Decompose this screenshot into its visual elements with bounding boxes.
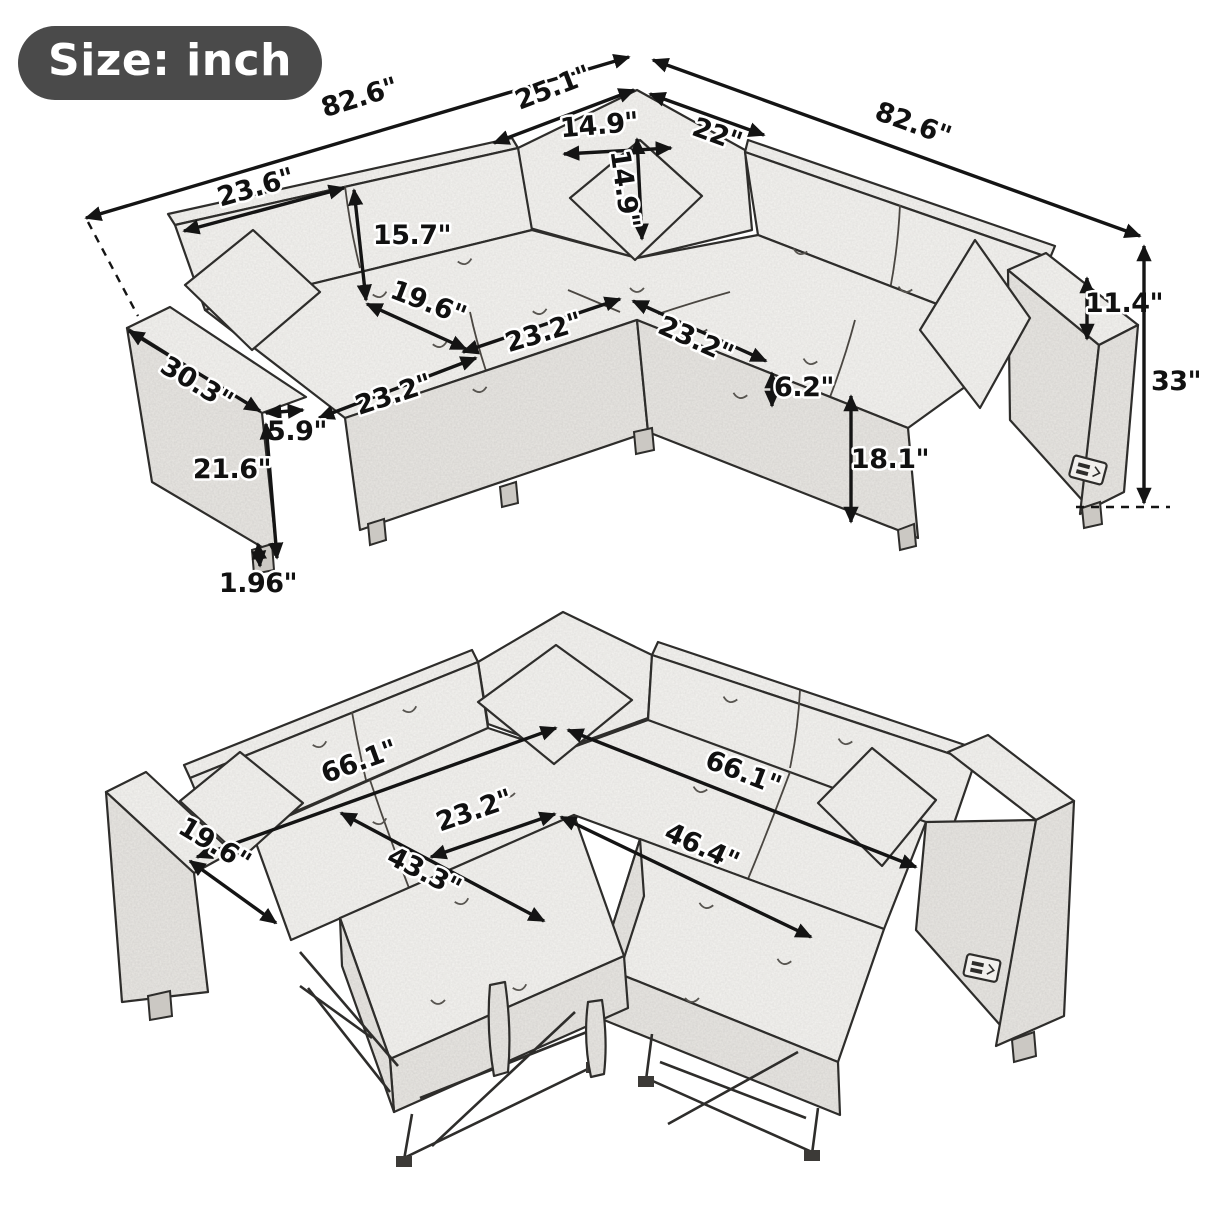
bed-left-armrest-leg [148,991,172,1020]
dim-label-leg-height: 1.96" [219,568,297,599]
dim-leg-height: 1.96" [219,544,297,599]
dim-cushion-thickness: 6.2" [772,372,834,406]
dim-label-arm-width: 5.9" [267,416,327,447]
diagram-canvas: 82.6" 25.1" 22" 82.6" 23.6" 14.9" [0,0,1214,1214]
dim-label-back-cushion-height: 15.7" [373,220,451,251]
dim-label-seat-height: 18.1" [851,444,929,475]
bed-view: 66.1" 66.1" 23.2" 46.4" 19.6" 43.3" [106,612,1074,1167]
sofa-leg [634,428,654,454]
dim-label-total-width-left: 82.6" [318,72,402,125]
dim-label-arm-height: 21.6" [193,454,271,485]
sofa-leg [500,482,518,507]
bed-sofa-sketch [106,612,1074,1167]
dim-arm-width: 5.9" [266,410,327,447]
dim-label-back-above-arm: 11.4" [1085,288,1163,319]
dim-label-cushion-thickness: 6.2" [774,372,834,403]
size-unit-badge-label: Size: inch [48,35,292,86]
size-unit-badge: Size: inch [18,26,322,100]
assembled-view: 82.6" 25.1" 22" 82.6" 23.6" 14.9" [86,57,1201,599]
sofa-leg [368,519,386,545]
dim-label-overall-height: 33" [1151,366,1201,397]
pull-strap-handle [489,982,510,1076]
pull-strap-handle [586,1000,606,1077]
sofa-dimension-diagram: 82.6" 25.1" 22" 82.6" 23.6" 14.9" [0,0,1214,1214]
